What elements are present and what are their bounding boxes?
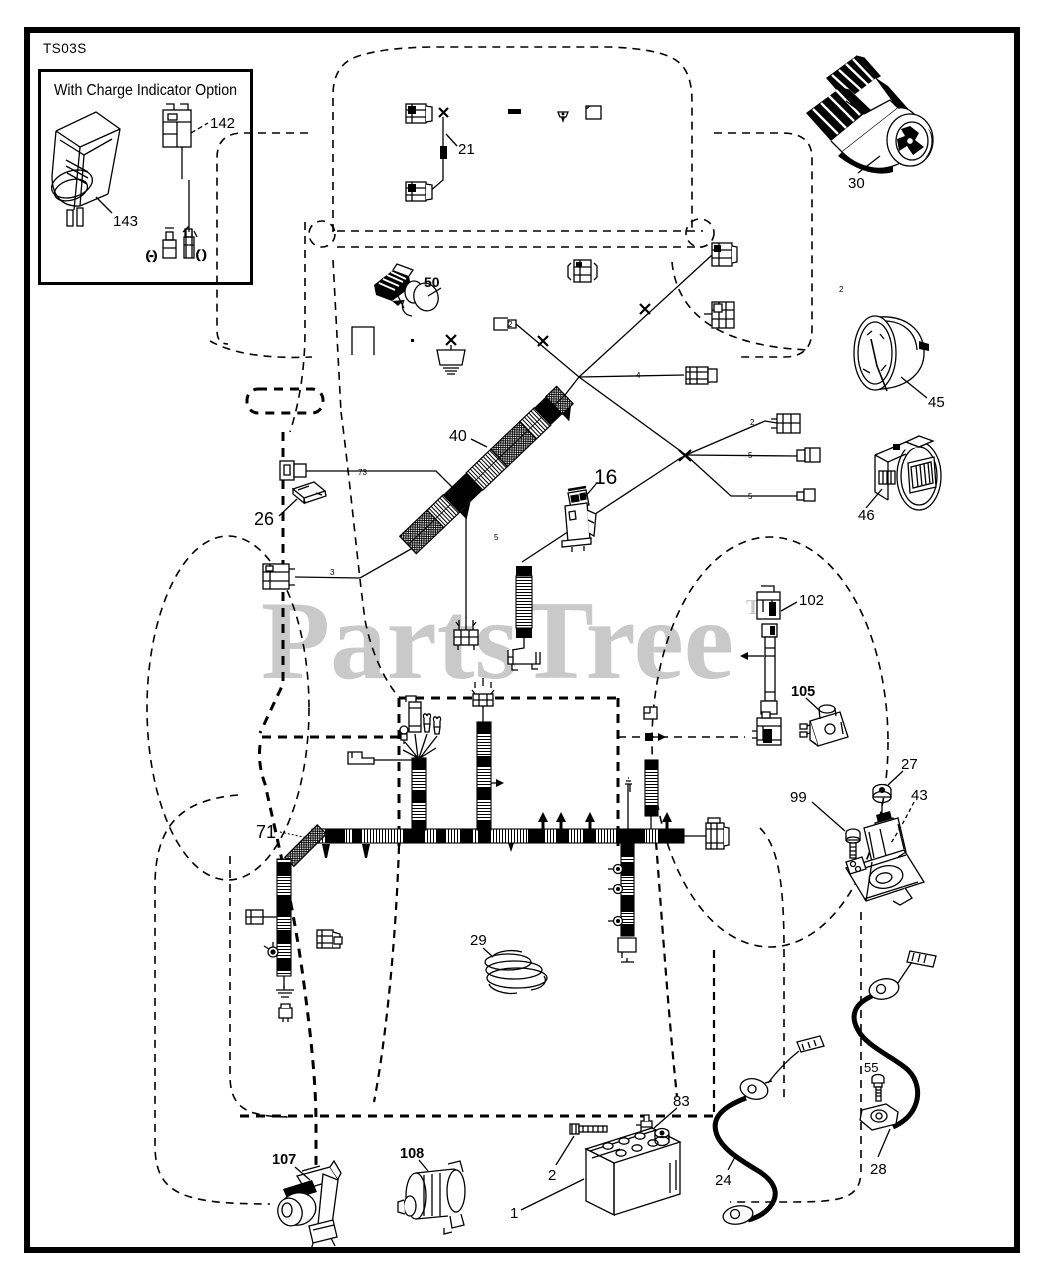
svg-text:( ): ( ) — [196, 249, 206, 261]
svg-text:105: 105 — [791, 684, 815, 700]
svg-text:45: 45 — [928, 394, 945, 411]
svg-text:102: 102 — [799, 592, 824, 609]
svg-text:27: 27 — [901, 756, 918, 773]
svg-text:71: 71 — [256, 822, 276, 842]
svg-text:2: 2 — [548, 1167, 556, 1184]
svg-text:1: 1 — [510, 1205, 518, 1222]
svg-text:3: 3 — [330, 568, 335, 577]
svg-text:21: 21 — [458, 141, 475, 158]
svg-text:28: 28 — [870, 1161, 887, 1178]
svg-text:73: 73 — [358, 468, 367, 477]
svg-text:5: 5 — [494, 533, 499, 542]
svg-text:46: 46 — [858, 507, 875, 524]
svg-text:43: 43 — [911, 787, 928, 804]
svg-text:PartsTree: PartsTree — [261, 579, 734, 703]
svg-text:2: 2 — [839, 285, 844, 294]
svg-text:40: 40 — [449, 428, 467, 445]
svg-text:With Charge Indicator Option: With Charge Indicator Option — [54, 82, 237, 99]
svg-text:5: 5 — [748, 492, 753, 501]
svg-text:24: 24 — [715, 1172, 732, 1189]
svg-text:(-): (-) — [146, 250, 157, 262]
svg-text:30: 30 — [848, 175, 865, 192]
svg-text:16: 16 — [594, 466, 617, 489]
svg-text:26: 26 — [254, 509, 274, 529]
svg-text:5: 5 — [748, 451, 753, 460]
svg-text:4: 4 — [636, 371, 641, 380]
svg-text:142: 142 — [210, 115, 235, 132]
svg-text:108: 108 — [400, 1146, 424, 1162]
svg-text:99: 99 — [790, 789, 807, 806]
svg-text:143: 143 — [113, 213, 138, 230]
svg-text:50: 50 — [424, 274, 440, 290]
svg-text:55: 55 — [864, 1060, 878, 1075]
svg-text:29: 29 — [470, 932, 487, 949]
svg-text:2: 2 — [750, 418, 755, 427]
svg-text:TS03S: TS03S — [43, 41, 87, 56]
svg-text:2: 2 — [508, 320, 513, 329]
svg-text:83: 83 — [673, 1093, 690, 1110]
svg-text:107: 107 — [272, 1152, 296, 1168]
